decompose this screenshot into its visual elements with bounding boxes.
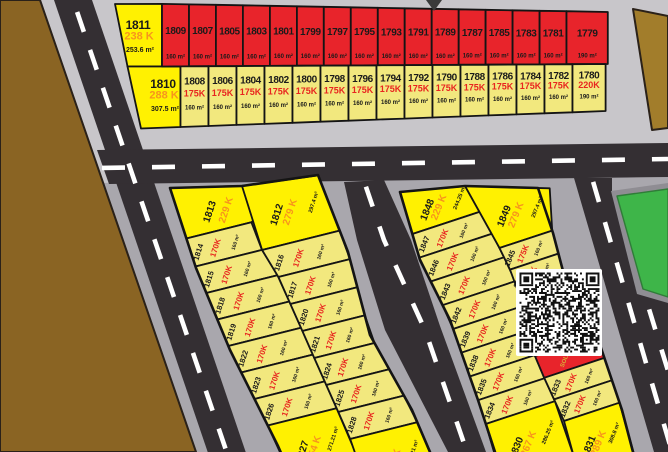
svg-text:160 m²: 160 m²: [301, 53, 320, 60]
svg-text:1807: 1807: [192, 26, 213, 37]
svg-text:1781: 1781: [543, 29, 564, 40]
svg-text:1803: 1803: [246, 26, 267, 37]
svg-text:175K: 175K: [548, 81, 570, 91]
svg-text:160 m²: 160 m²: [297, 101, 316, 108]
svg-text:175K: 175K: [240, 87, 262, 97]
svg-text:160 m²: 160 m²: [241, 103, 260, 110]
svg-text:1785: 1785: [489, 28, 510, 39]
svg-text:1799: 1799: [300, 27, 321, 38]
svg-text:160 m²: 160 m²: [521, 95, 540, 102]
svg-text:1809: 1809: [165, 26, 186, 37]
svg-text:175K: 175K: [212, 88, 234, 98]
svg-text:175K: 175K: [324, 85, 346, 95]
svg-text:175K: 175K: [520, 81, 542, 91]
svg-text:1791: 1791: [408, 28, 429, 39]
svg-text:160 m²: 160 m²: [247, 53, 266, 60]
svg-text:190 m²: 190 m²: [579, 93, 598, 100]
svg-text:175K: 175K: [492, 82, 514, 92]
svg-text:175K: 175K: [296, 86, 318, 96]
svg-text:1795: 1795: [354, 27, 375, 38]
svg-text:1783: 1783: [516, 28, 537, 39]
svg-text:253.6 m²: 253.6 m²: [126, 47, 155, 54]
svg-text:160 m²: 160 m²: [465, 97, 484, 104]
svg-text:175K: 175K: [464, 82, 486, 92]
svg-text:1790: 1790: [436, 73, 457, 84]
svg-text:175K: 175K: [436, 83, 458, 93]
svg-text:160 m²: 160 m²: [409, 53, 428, 60]
svg-text:160 m²: 160 m²: [269, 102, 288, 109]
svg-text:175K: 175K: [352, 85, 374, 95]
svg-text:160 m²: 160 m²: [325, 101, 344, 108]
svg-text:1801: 1801: [273, 27, 294, 38]
svg-text:160 m²: 160 m²: [166, 54, 185, 61]
svg-text:307.5 m²: 307.5 m²: [151, 106, 180, 113]
svg-text:1796: 1796: [352, 74, 373, 85]
svg-text:1802: 1802: [268, 75, 289, 86]
svg-text:175K: 175K: [268, 87, 290, 97]
svg-text:1794: 1794: [380, 73, 401, 84]
svg-text:175K: 175K: [408, 84, 430, 94]
svg-text:160 m²: 160 m²: [274, 53, 293, 60]
svg-text:160 m²: 160 m²: [436, 53, 455, 60]
svg-text:160 m²: 160 m²: [355, 53, 374, 60]
svg-text:160 m²: 160 m²: [549, 94, 568, 101]
svg-text:1808: 1808: [184, 76, 205, 87]
svg-text:1793: 1793: [381, 27, 402, 38]
svg-text:160 m²: 160 m²: [493, 96, 512, 103]
svg-text:160 m²: 160 m²: [193, 53, 212, 60]
svg-text:160 m²: 160 m²: [213, 104, 232, 111]
svg-text:1789: 1789: [435, 28, 456, 39]
svg-text:175K: 175K: [380, 84, 402, 94]
svg-text:1806: 1806: [212, 76, 233, 87]
svg-text:160 m²: 160 m²: [490, 53, 509, 60]
svg-text:175K: 175K: [184, 88, 206, 98]
svg-text:160 m²: 160 m²: [517, 53, 536, 60]
svg-text:1792: 1792: [408, 73, 429, 84]
svg-text:160 m²: 160 m²: [220, 53, 239, 60]
svg-text:160 m²: 160 m²: [437, 97, 456, 104]
svg-text:1797: 1797: [327, 27, 348, 38]
svg-text:1787: 1787: [462, 28, 483, 39]
svg-text:160 m²: 160 m²: [328, 53, 347, 60]
svg-text:1779: 1779: [577, 29, 598, 40]
svg-text:238 K: 238 K: [124, 31, 153, 43]
svg-text:288 K: 288 K: [149, 90, 178, 102]
svg-text:1800: 1800: [296, 75, 317, 86]
svg-text:160 m²: 160 m²: [544, 53, 563, 60]
svg-text:160 m²: 160 m²: [353, 100, 372, 107]
svg-text:160 m²: 160 m²: [381, 99, 400, 106]
svg-text:220K: 220K: [578, 80, 600, 90]
svg-text:1804: 1804: [240, 76, 261, 87]
svg-text:160 m²: 160 m²: [382, 53, 401, 60]
svg-text:160 m²: 160 m²: [409, 98, 428, 105]
svg-text:160 m²: 160 m²: [185, 105, 204, 112]
svg-text:1805: 1805: [219, 26, 240, 37]
svg-text:1798: 1798: [324, 74, 345, 85]
svg-text:190 m²: 190 m²: [578, 52, 597, 59]
svg-text:160 m²: 160 m²: [463, 53, 482, 60]
